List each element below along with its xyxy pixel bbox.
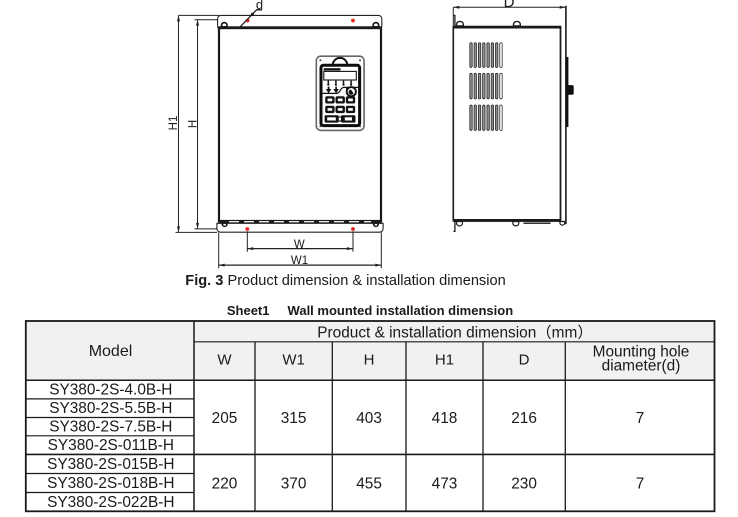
svg-text:D: D xyxy=(519,351,530,368)
svg-text:H: H xyxy=(364,351,375,368)
svg-text:SY380-2S-7.5B-H: SY380-2S-7.5B-H xyxy=(49,419,172,436)
svg-text:W1: W1 xyxy=(282,351,305,368)
svg-text:SY380-2S-5.5B-H: SY380-2S-5.5B-H xyxy=(49,400,172,417)
svg-text:418: 418 xyxy=(432,410,458,427)
svg-text:230: 230 xyxy=(511,476,537,493)
svg-text:Product & installation dimensi: Product & installation dimension（mm） xyxy=(317,324,592,341)
svg-text:W: W xyxy=(217,351,232,368)
svg-text:SY380-2S-018B-H: SY380-2S-018B-H xyxy=(47,475,174,492)
svg-text:H: H xyxy=(187,120,199,128)
svg-text:H1: H1 xyxy=(435,351,454,368)
svg-text:Model: Model xyxy=(89,343,133,360)
svg-text:403: 403 xyxy=(356,410,382,427)
svg-text:473: 473 xyxy=(432,476,458,493)
svg-text:220: 220 xyxy=(212,476,238,493)
svg-text:Fig. 3 Product dimension & ins: Fig. 3 Product dimension & installation … xyxy=(185,273,505,289)
svg-text:SY380-2S-015B-H: SY380-2S-015B-H xyxy=(47,456,174,473)
svg-text:W1: W1 xyxy=(291,255,308,267)
svg-text:W: W xyxy=(294,239,305,251)
svg-text:d: d xyxy=(256,0,263,12)
svg-text:315: 315 xyxy=(281,410,307,427)
svg-text:SY380-2S-022B-H: SY380-2S-022B-H xyxy=(47,494,174,511)
svg-text:455: 455 xyxy=(356,476,382,493)
svg-text:7: 7 xyxy=(636,410,645,427)
svg-text:7: 7 xyxy=(636,476,645,493)
svg-text:D: D xyxy=(504,0,515,11)
svg-text:370: 370 xyxy=(281,476,307,493)
svg-text:Sheet1 Wall mounted instal: Sheet1 Wall mounted installation dimensi… xyxy=(227,303,513,318)
svg-text:216: 216 xyxy=(511,410,537,427)
svg-text:diameter(d): diameter(d) xyxy=(602,358,681,375)
svg-text:205: 205 xyxy=(212,410,238,427)
svg-text:SY380-2S-011B-H: SY380-2S-011B-H xyxy=(48,437,174,454)
svg-text:H1: H1 xyxy=(168,116,180,131)
svg-text:SY380-2S-4.0B-H: SY380-2S-4.0B-H xyxy=(49,382,172,399)
